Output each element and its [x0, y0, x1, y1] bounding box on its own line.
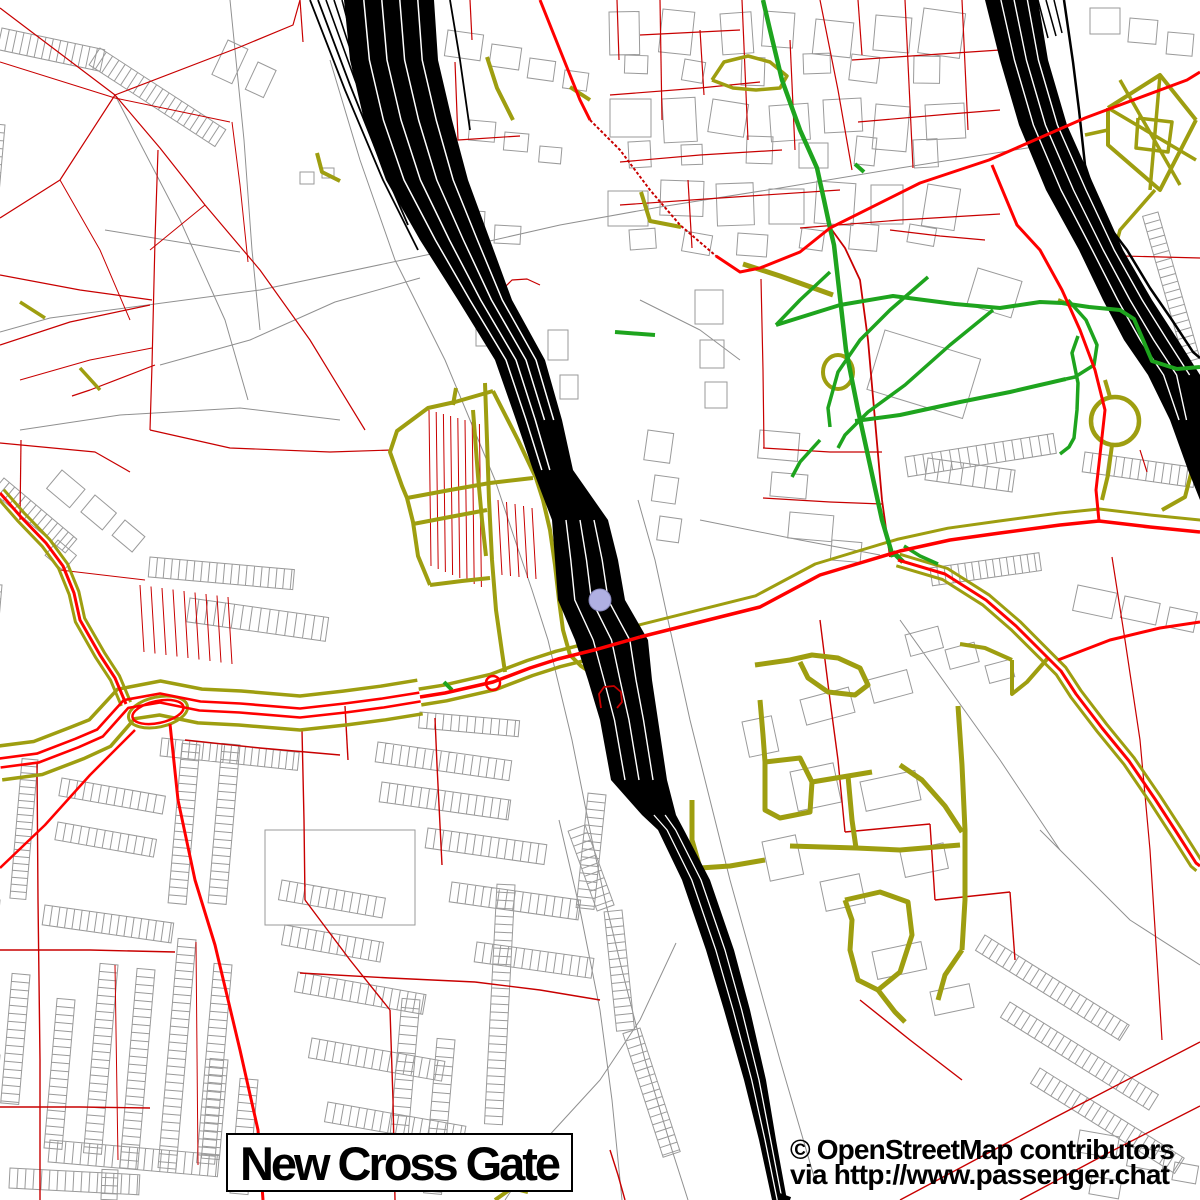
- svg-text:via http://www.passenger.chat: via http://www.passenger.chat: [790, 1159, 1170, 1190]
- svg-text:New Cross Gate: New Cross Gate: [240, 1137, 561, 1190]
